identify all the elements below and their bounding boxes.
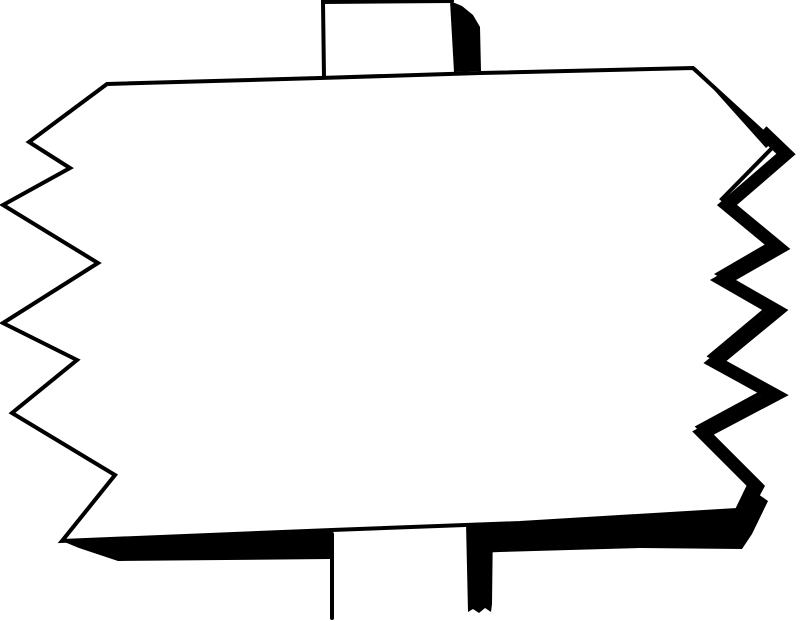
signpost-illustration [0,0,800,621]
sign-board [3,68,776,541]
signpost-drawing-canvas [0,0,800,621]
top-post-shadow [450,1,481,72]
bottom-post-face [332,523,468,620]
top-post-face [322,1,456,79]
bottom-post-shadow-bar [466,522,493,613]
